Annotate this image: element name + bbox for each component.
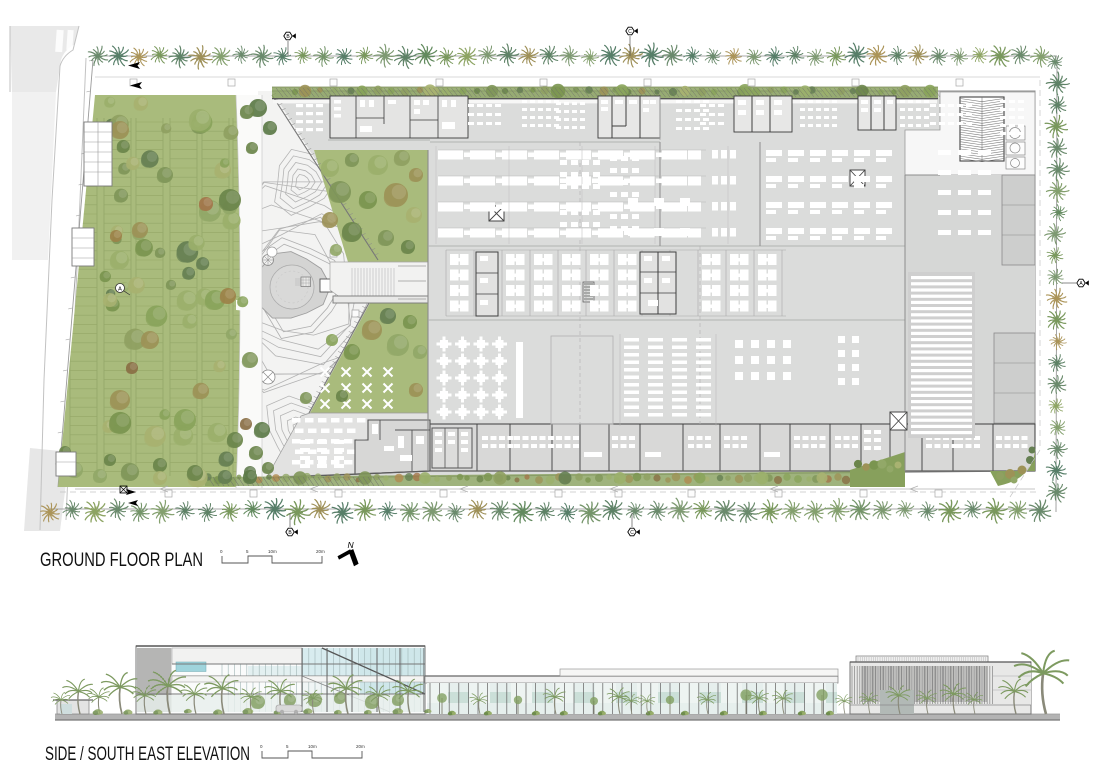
svg-text:C: C [628,29,632,35]
svg-text:20m: 20m [356,744,365,749]
svg-text:20m: 20m [316,549,325,554]
svg-text:SIDE / SOUTH EAST ELEVATION: SIDE / SOUTH EAST ELEVATION [45,743,250,765]
svg-text:A: A [118,287,122,293]
svg-text:C: C [630,530,634,536]
svg-text:GROUND FLOOR PLAN: GROUND FLOOR PLAN [40,549,203,571]
svg-text:N: N [348,540,355,550]
svg-text:10m: 10m [308,744,317,749]
svg-text:10m: 10m [268,549,277,554]
